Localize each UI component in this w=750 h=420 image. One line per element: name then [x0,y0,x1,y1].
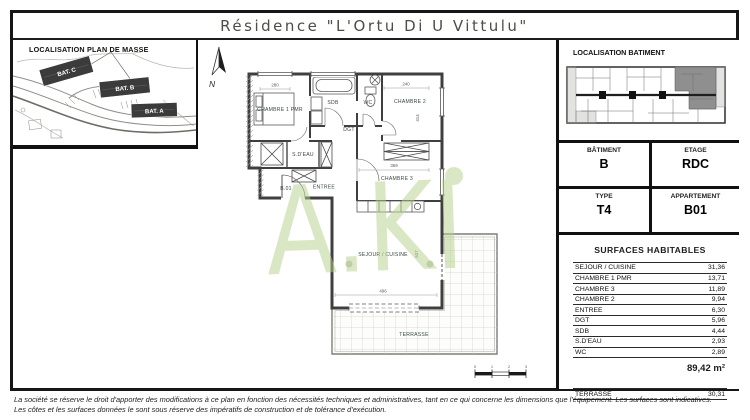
page-title: Résidence "L'Ortu Di U Vittulu" [220,17,529,35]
scale-tick-3: 3 [525,365,527,369]
exterior-wall-hatch2 [258,169,264,197]
room-label-terrasse: TERRASSE [399,332,429,338]
site-building-b: BAT. B [99,77,150,98]
building-plan [563,64,733,130]
surfaces-table: SEJOUR / CUISINE31,36 CHAMBRE 1 PMR13,71… [573,262,727,358]
watermark-logo: A.KI [264,155,467,304]
site-plan-title: LOCALISATION PLAN DE MASSE [29,45,149,54]
table-row: WC2,89 [573,348,727,359]
surface-label: SDB [575,328,589,335]
cell-etage: ETAGE RDC [649,143,739,189]
room-label-sdeau: S.D'EAU [292,152,314,158]
surface-value: 2,89 [712,349,725,356]
watermark-dot [445,167,463,185]
surface-value: 5,96 [712,317,725,324]
surface-value: 13,71 [708,275,725,282]
scale-tick-0: 0 [474,365,476,369]
site-building-a-label: BAT. A [145,109,165,116]
site-plan-panel: LOCALISATION PLAN DE MASSE BAT. C [13,40,198,149]
site-plan-map: BAT. C BAT. B BAT. A [13,40,196,145]
surface-label: ENTREE [575,307,603,314]
cell-appartement: APPARTEMENT B01 [649,189,739,235]
scale-tick-2: 2 [508,365,510,369]
appartement-value: B01 [652,203,739,217]
table-row: S.D'EAU2,93 [573,337,727,348]
floor-plan-svg: N [197,41,555,389]
etage-value: RDC [652,157,739,171]
surface-label: CHAMBRE 1 PMR [575,275,632,282]
surface-label: CHAMBRE 2 [575,296,615,303]
room-label-chambre2: CHAMBRE 2 [394,99,426,105]
title-band: Résidence "L'Ortu Di U Vittulu" [13,13,736,40]
table-row: ENTREE6,30 [573,305,727,316]
disclaimer-line2: Les côtes et les surfaces données le son… [14,405,736,415]
exterior-wall-hatch [246,75,253,167]
table-row: DGT5,96 [573,316,727,327]
surface-label: WC [575,349,586,356]
table-row: CHAMBRE 29,94 [573,295,727,306]
site-building-c: BAT. C [39,56,94,87]
room-label-dgt: DGT [343,127,355,133]
appartement-label: APPARTEMENT [652,193,739,200]
surfaces-section: SURFACES HABITABLES SEJOUR / CUISINE31,3… [559,235,739,400]
surfaces-total: 89,42 m² [573,358,727,374]
batiment-value: B [559,157,649,171]
cell-batiment: BÂTIMENT B [559,143,649,189]
floor-plan-area: N [197,41,555,389]
table-row: SDB4,44 [573,326,727,337]
dim-240: 240 [402,82,410,87]
dim-280: 280 [271,83,279,88]
room-label-sdb: SDB [327,100,339,106]
building-hatch-right [716,67,725,107]
north-arrow-icon: N [209,47,226,89]
footer-disclaimer: La société se réserve le droit d'apporte… [14,395,736,415]
surface-value: 4,44 [712,328,725,335]
surface-value: 9,94 [712,296,725,303]
batiment-label: BÂTIMENT [559,147,649,154]
surface-label: SEJOUR / CUISINE [575,264,636,271]
scale-bar: 0 1 2 3 [474,365,527,378]
watermark-text: A.KI [264,155,467,304]
surface-label: DGT [575,317,589,324]
unit-info-table: BÂTIMENT B ETAGE RDC TYPE T4 APPARTEMENT… [559,143,739,235]
surface-value: 31,36 [708,264,725,271]
building-hatch-bottom [576,111,596,123]
right-panel: LOCALISATION BATIMENT [556,40,739,389]
site-building-a: BAT. A [131,102,177,118]
surface-value: 6,30 [712,307,725,314]
etage-label: ETAGE [652,147,739,154]
table-row: SEJOUR / CUISINE31,36 [573,263,727,274]
table-row: CHAMBRE 1 PMR13,71 [573,274,727,285]
disclaimer-line1: La société se réserve le droit d'apporte… [14,395,736,405]
scale-tick-1: 1 [491,365,493,369]
table-row: CHAMBRE 311,89 [573,284,727,295]
cell-type: TYPE T4 [559,189,649,235]
room-label-chambre1: CHAMBRE 1 PMR [257,107,303,113]
surface-value: 11,89 [708,286,725,293]
type-value: T4 [559,203,649,217]
building-location-title: LOCALISATION BATIMENT [573,48,665,57]
surfaces-title: SURFACES HABITABLES [573,245,727,255]
surface-label: S.D'EAU [575,338,602,345]
surface-label: CHAMBRE 3 [575,286,615,293]
building-hatch-left [567,67,576,123]
dim-414: 414 [415,114,420,122]
type-label: TYPE [559,193,649,200]
building-location-box: LOCALISATION BATIMENT [559,40,739,143]
surface-value: 2,93 [712,338,725,345]
room-label-wc: WC [364,100,373,106]
north-label: N [209,79,216,89]
